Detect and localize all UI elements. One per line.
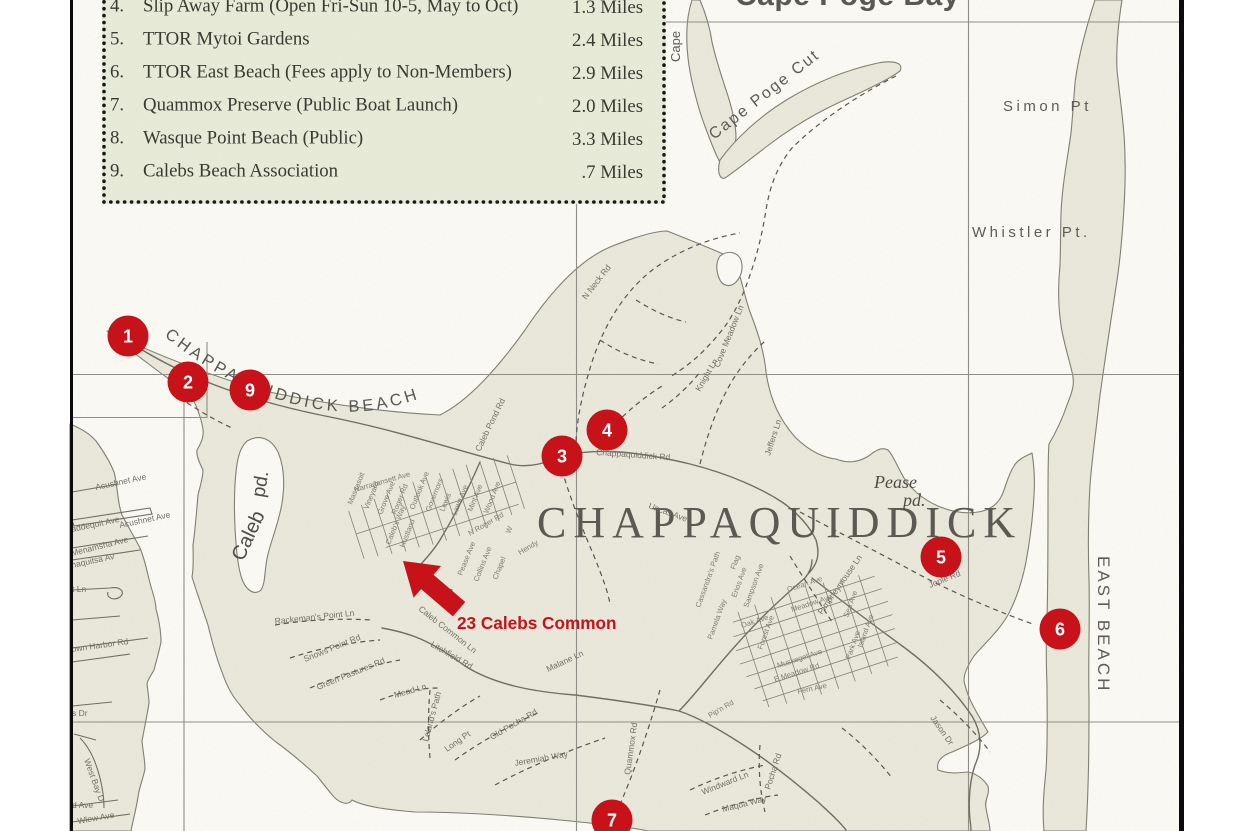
svg-text:3: 3 <box>557 447 567 467</box>
svg-text:6: 6 <box>1055 620 1065 640</box>
svg-text:4: 4 <box>602 421 612 441</box>
svg-text:23 Calebs Common: 23 Calebs Common <box>457 613 617 633</box>
svg-text:2: 2 <box>183 373 193 393</box>
svg-text:9: 9 <box>245 381 255 401</box>
svg-text:7: 7 <box>607 811 617 831</box>
svg-text:1: 1 <box>123 327 133 347</box>
svg-text:5: 5 <box>936 548 946 568</box>
